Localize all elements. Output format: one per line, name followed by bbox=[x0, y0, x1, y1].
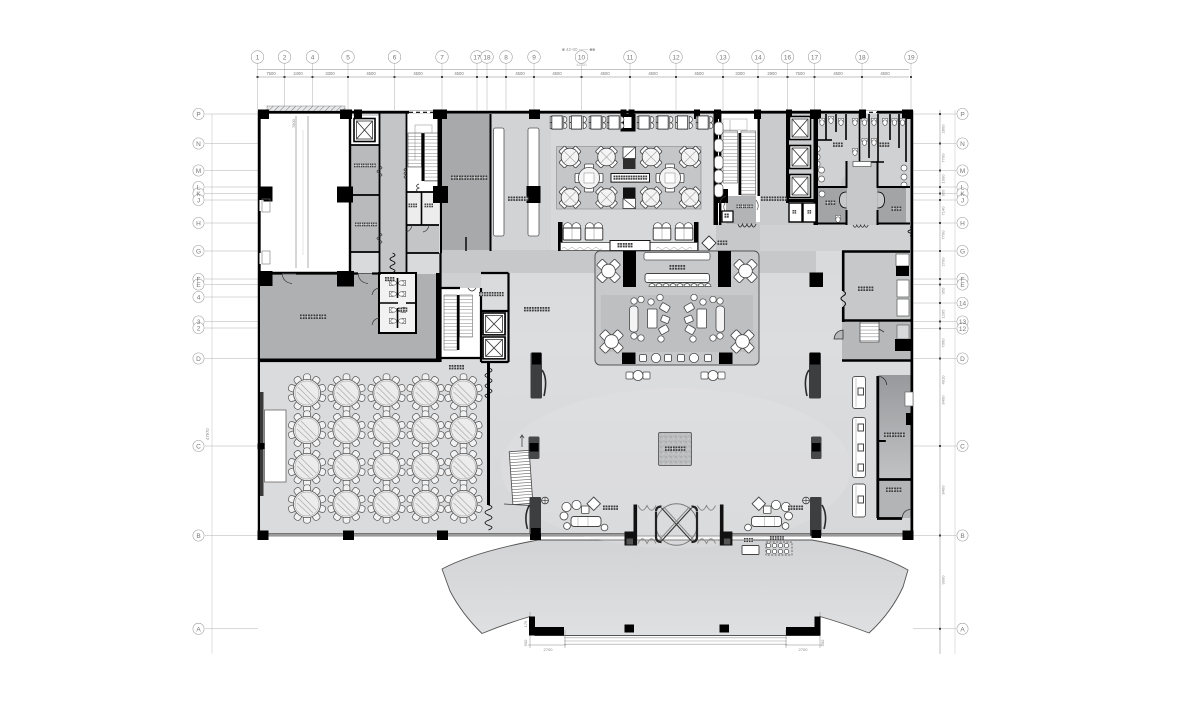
svg-text:D: D bbox=[960, 356, 965, 363]
svg-text:M: M bbox=[196, 168, 201, 175]
svg-text:7140: 7140 bbox=[941, 206, 946, 216]
svg-text:4500: 4500 bbox=[413, 71, 423, 76]
svg-text:A: A bbox=[196, 626, 201, 633]
svg-text:4: 4 bbox=[197, 295, 201, 302]
svg-text:16: 16 bbox=[784, 55, 792, 62]
svg-text:4500: 4500 bbox=[648, 71, 658, 76]
svg-text:2800: 2800 bbox=[941, 124, 946, 134]
svg-text:7800: 7800 bbox=[291, 118, 296, 128]
svg-text:7700: 7700 bbox=[941, 153, 946, 163]
svg-text:175: 175 bbox=[523, 620, 528, 627]
svg-text:N: N bbox=[960, 141, 965, 148]
svg-text:2: 2 bbox=[283, 55, 287, 62]
svg-text:13: 13 bbox=[719, 55, 727, 62]
svg-text:6: 6 bbox=[393, 55, 397, 62]
svg-text:4910: 4910 bbox=[941, 375, 946, 385]
svg-text:13: 13 bbox=[959, 319, 967, 326]
svg-text:1: 1 bbox=[256, 55, 260, 62]
svg-text:17: 17 bbox=[473, 55, 481, 62]
svg-text:14: 14 bbox=[754, 55, 762, 62]
svg-text:4500: 4500 bbox=[833, 71, 843, 76]
svg-text:C: C bbox=[960, 444, 965, 451]
svg-text:19: 19 bbox=[907, 55, 915, 62]
svg-text:500: 500 bbox=[523, 639, 528, 646]
svg-text:7: 7 bbox=[440, 55, 444, 62]
svg-text:7500: 7500 bbox=[795, 71, 805, 76]
svg-text:14: 14 bbox=[959, 301, 967, 308]
svg-text:2400: 2400 bbox=[293, 71, 303, 76]
svg-text:D: D bbox=[196, 356, 201, 363]
svg-text:■ 42-00 ─── ■■: ■ 42-00 ─── ■■ bbox=[562, 47, 595, 52]
svg-text:4500: 4500 bbox=[880, 71, 890, 76]
svg-text:7500: 7500 bbox=[266, 71, 276, 76]
svg-text:4500: 4500 bbox=[552, 71, 562, 76]
svg-text:4500: 4500 bbox=[600, 71, 610, 76]
svg-text:18: 18 bbox=[858, 55, 866, 62]
svg-text:4500: 4500 bbox=[366, 71, 376, 76]
svg-text:N: N bbox=[196, 141, 201, 148]
svg-text:M: M bbox=[960, 168, 965, 175]
svg-text:P: P bbox=[960, 112, 964, 119]
svg-text:18: 18 bbox=[483, 55, 491, 62]
svg-text:8400: 8400 bbox=[941, 395, 946, 405]
svg-text:7060: 7060 bbox=[941, 338, 946, 348]
svg-text:950: 950 bbox=[941, 287, 946, 294]
svg-text:B: B bbox=[960, 533, 964, 540]
svg-text:42-00: 42-00 bbox=[576, 62, 587, 67]
svg-text:8400: 8400 bbox=[941, 485, 946, 495]
svg-text:G: G bbox=[196, 249, 201, 256]
svg-text:3300: 3300 bbox=[325, 71, 335, 76]
svg-text:3300: 3300 bbox=[735, 71, 745, 76]
svg-text:47970: 47970 bbox=[205, 428, 210, 440]
svg-text:E: E bbox=[960, 282, 965, 289]
svg-text:G: G bbox=[960, 249, 965, 256]
svg-text:P: P bbox=[196, 112, 200, 119]
svg-text:12: 12 bbox=[672, 55, 680, 62]
svg-text:950: 950 bbox=[941, 189, 946, 196]
svg-text:9000: 9000 bbox=[941, 575, 946, 585]
svg-text:2700: 2700 bbox=[544, 647, 554, 652]
svg-text:2: 2 bbox=[197, 326, 201, 333]
svg-text:11: 11 bbox=[627, 55, 634, 62]
svg-text:C: C bbox=[196, 444, 201, 451]
svg-text:4500: 4500 bbox=[515, 71, 525, 76]
svg-text:17: 17 bbox=[811, 55, 819, 62]
svg-text:H: H bbox=[196, 221, 201, 228]
svg-text:E: E bbox=[196, 282, 201, 289]
svg-text:5: 5 bbox=[346, 55, 350, 62]
svg-text:4500: 4500 bbox=[454, 71, 464, 76]
svg-text:12: 12 bbox=[959, 326, 967, 333]
svg-text:8: 8 bbox=[504, 55, 508, 62]
svg-text:4500: 4500 bbox=[694, 71, 704, 76]
svg-text:2700: 2700 bbox=[941, 257, 946, 267]
svg-text:J: J bbox=[961, 198, 964, 205]
svg-text:4: 4 bbox=[311, 55, 315, 62]
svg-text:B: B bbox=[196, 533, 200, 540]
svg-text:2700: 2700 bbox=[799, 647, 809, 652]
svg-text:1000: 1000 bbox=[941, 174, 946, 184]
svg-text:7700: 7700 bbox=[941, 230, 946, 240]
svg-text:1295: 1295 bbox=[941, 309, 946, 319]
svg-text:A: A bbox=[960, 626, 965, 633]
svg-text:2900: 2900 bbox=[767, 71, 777, 76]
svg-text:9: 9 bbox=[532, 55, 536, 62]
svg-text:10: 10 bbox=[578, 55, 586, 62]
svg-text:500: 500 bbox=[820, 639, 825, 646]
svg-text:J: J bbox=[197, 198, 200, 205]
svg-text:H: H bbox=[960, 221, 965, 228]
